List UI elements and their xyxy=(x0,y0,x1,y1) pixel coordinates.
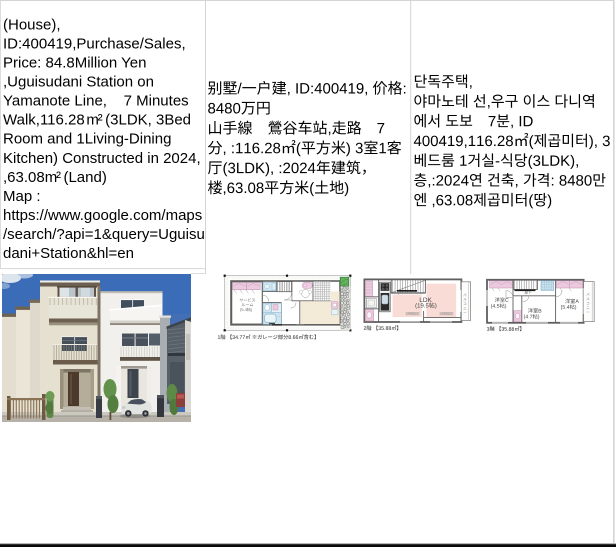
svg-text:dani+Station&hl=en: dani+Station&hl=en xyxy=(3,245,134,262)
svg-text:,Uguisudani Station on: ,Uguisudani Station on xyxy=(3,74,154,91)
svg-text:https://www.google.com/maps: https://www.google.com/maps xyxy=(3,207,202,224)
svg-text:(House),: (House), xyxy=(3,16,61,33)
svg-text:Map :: Map : xyxy=(3,188,41,205)
svg-text:Walk,116.28: Walk,116.28 xyxy=(3,112,85,129)
svg-text:Yamanote Line, 7 Minutes: Yamanote Line, 7 Minutes xyxy=(3,93,189,110)
svg-text:Price: 84.8Million Yen: Price: 84.8Million Yen xyxy=(3,54,146,71)
svg-text:Room and 1Living-Dining: Room and 1Living-Dining xyxy=(3,131,171,148)
svg-text:(3LDK, 3Bed: (3LDK, 3Bed xyxy=(101,112,191,129)
svg-text:ID:400419,Purchase/Sales,: ID:400419,Purchase/Sales, xyxy=(3,35,186,52)
svg-text:(Land): (Land) xyxy=(59,169,107,186)
svg-text:Kitchen) Constructed in 2024,: Kitchen) Constructed in 2024, xyxy=(3,150,201,167)
svg-text:,63.08: ,63.08 xyxy=(3,169,45,186)
svg-text:/search/?api=1&query=Uguisu: /search/?api=1&query=Uguisu xyxy=(3,226,205,243)
